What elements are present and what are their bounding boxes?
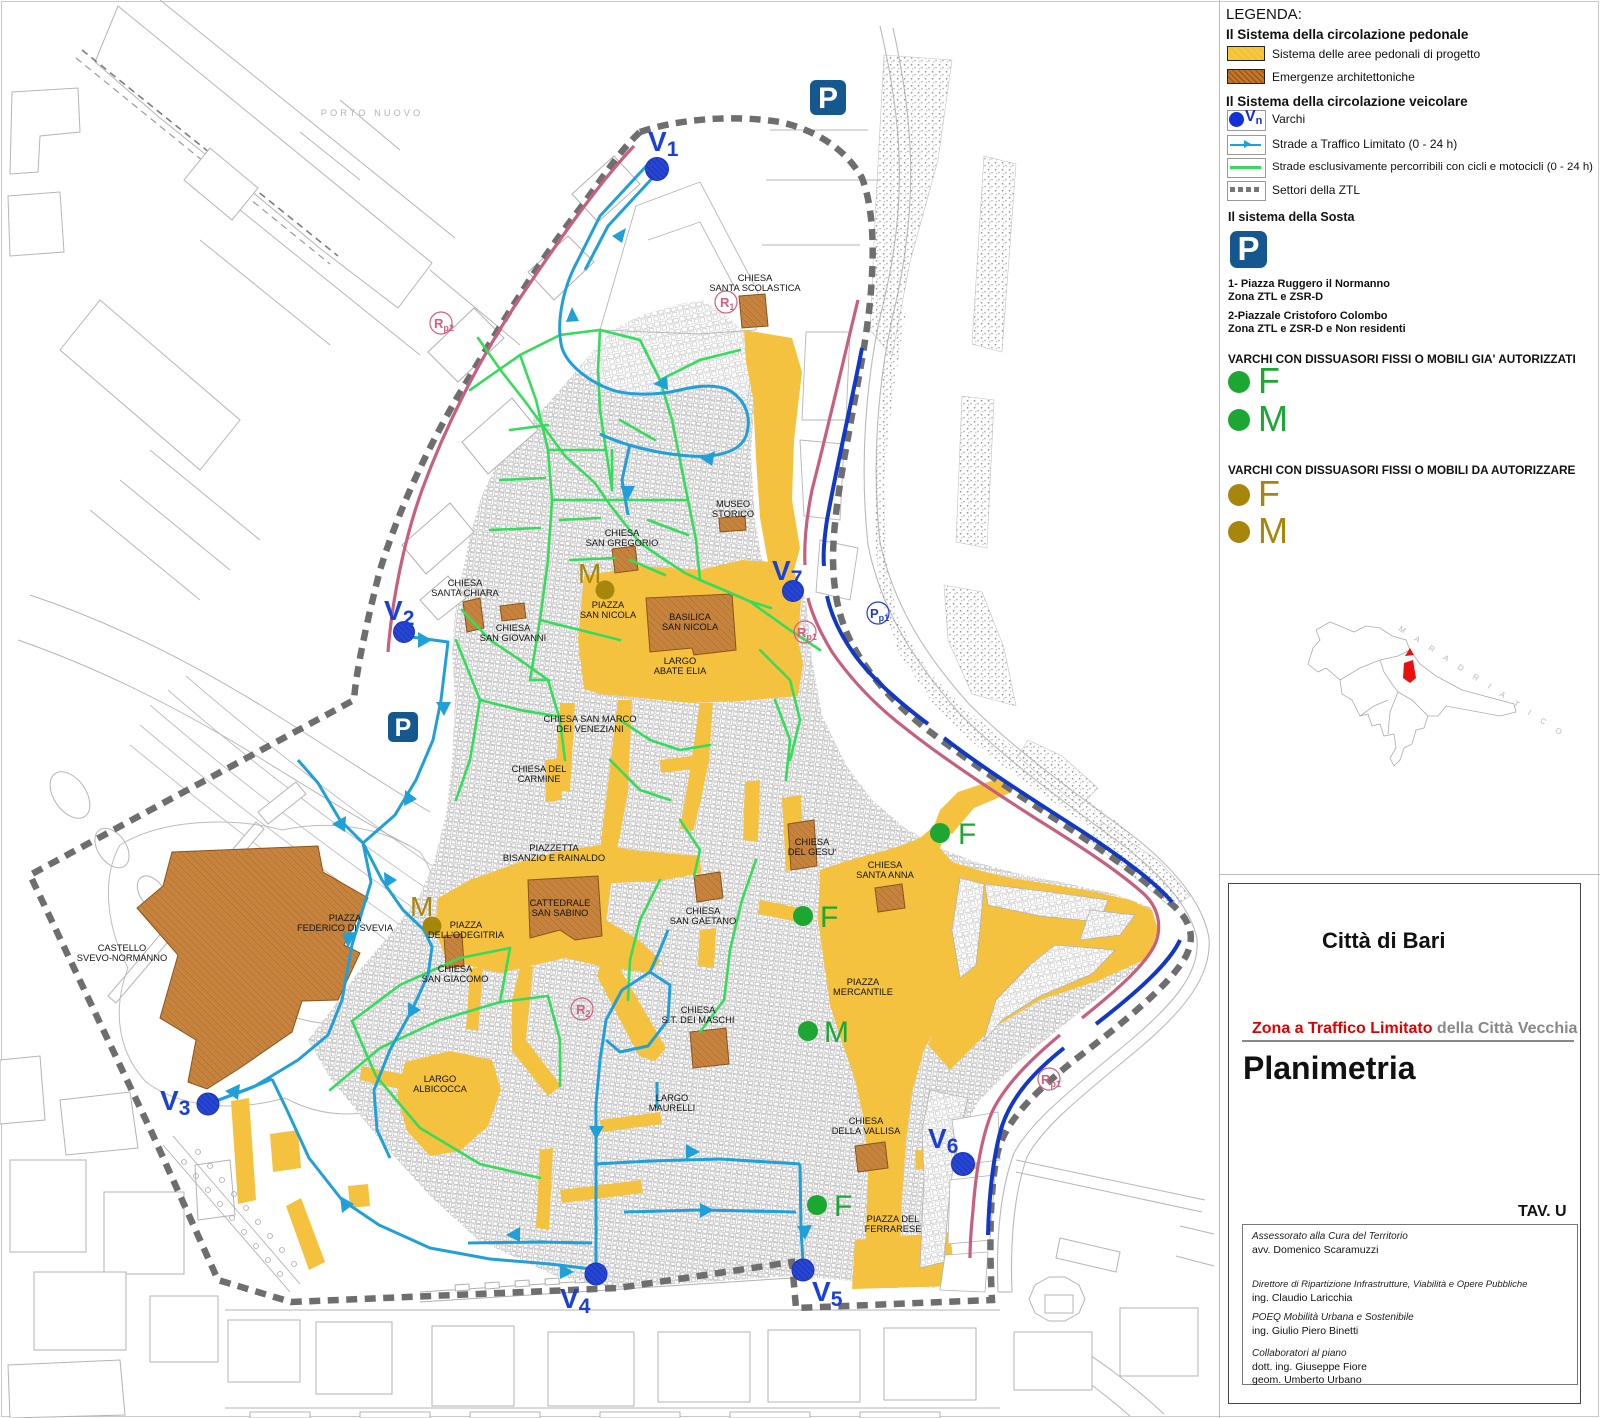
svg-text:STORICO: STORICO [712,509,754,519]
svg-text:PIAZZA: PIAZZA [329,913,362,923]
svg-text:SAN NICOLA: SAN NICOLA [662,622,719,632]
svg-text:CASTELLO: CASTELLO [98,943,147,953]
svg-text:CARMINE: CARMINE [518,774,561,784]
svg-text:S.T. DEI MASCHI: S.T. DEI MASCHI [662,1015,735,1025]
svg-text:MERCANTILE: MERCANTILE [833,987,893,997]
svg-text:CHIESA DEL: CHIESA DEL [512,764,567,774]
svg-text:FERRARESE: FERRARESE [865,1224,922,1234]
svg-text:F: F [958,818,976,851]
svg-text:SAN GREGORIO: SAN GREGORIO [586,538,659,548]
svg-text:SANTA ANNA: SANTA ANNA [856,870,914,880]
svg-text:CHIESA: CHIESA [605,528,640,538]
svg-text:CHIESA: CHIESA [795,837,830,847]
svg-text:SANTA SCOLASTICA: SANTA SCOLASTICA [709,283,801,293]
svg-text:PIAZZETTA: PIAZZETTA [529,843,579,853]
svg-text:M: M [578,558,601,589]
svg-text:M: M [410,891,433,922]
svg-text:M A R A D R I A T I C O: M A R A D R I A T I C O [1397,624,1568,739]
svg-text:V4: V4 [560,1283,591,1318]
svg-text:SVEVO-NORMANNO: SVEVO-NORMANNO [77,953,167,963]
svg-text:PIAZZA DEL: PIAZZA DEL [867,1214,920,1224]
svg-text:CHIESA: CHIESA [738,273,773,283]
svg-text:CHIESA: CHIESA [496,623,531,633]
svg-text:SAN GIACOMO: SAN GIACOMO [422,974,489,984]
svg-text:F: F [820,901,838,934]
svg-text:V1: V1 [648,126,679,161]
svg-text:PIAZZA: PIAZZA [592,600,625,610]
svg-text:LARGO: LARGO [664,656,697,666]
svg-text:V3: V3 [160,1085,190,1120]
svg-text:LARGO: LARGO [656,1093,689,1103]
svg-text:V7: V7 [772,555,802,590]
svg-text:DELL'ODEGITRIA: DELL'ODEGITRIA [428,930,505,940]
svg-text:Rp1: Rp1 [1041,1072,1061,1089]
svg-text:SAN NICOLA: SAN NICOLA [580,610,637,620]
svg-text:V2: V2 [384,595,414,630]
svg-text:BASILICA: BASILICA [669,612,712,622]
svg-text:CHIESA: CHIESA [868,860,903,870]
svg-text:FEDERICO DI SVEVIA: FEDERICO DI SVEVIA [297,923,394,933]
svg-text:M: M [824,1016,849,1049]
svg-text:F: F [834,1190,852,1223]
svg-text:ALBICOCCA: ALBICOCCA [413,1084,468,1094]
svg-text:SANTA CHIARA: SANTA CHIARA [431,588,499,598]
svg-text:PIAZZA: PIAZZA [847,977,880,987]
svg-text:SAN SABINO: SAN SABINO [532,908,589,918]
svg-text:SAN GIOVANNI: SAN GIOVANNI [480,633,546,643]
svg-text:CHIESA: CHIESA [438,964,473,974]
svg-text:R1: R1 [720,295,734,312]
svg-text:ABATE ELIA: ABATE ELIA [654,666,707,676]
svg-text:MAURELLI: MAURELLI [649,1103,696,1113]
svg-text:P: P [818,82,838,115]
svg-text:CHIESA: CHIESA [448,578,483,588]
svg-text:CHIESA SAN MARCO: CHIESA SAN MARCO [544,714,637,724]
svg-text:DEI VENEZIANI: DEI VENEZIANI [556,724,623,734]
svg-text:CHIESA: CHIESA [681,1005,716,1015]
svg-text:DEL GESU': DEL GESU' [788,847,837,857]
svg-text:SAN GAETANO: SAN GAETANO [670,916,736,926]
svg-text:DELLA VALLISA: DELLA VALLISA [832,1126,901,1136]
svg-text:LARGO: LARGO [424,1074,457,1084]
svg-text:CHIESA: CHIESA [686,906,721,916]
svg-text:CATTEDRALE: CATTEDRALE [530,898,591,908]
svg-text:PIAZZA: PIAZZA [450,920,483,930]
svg-text:CHIESA: CHIESA [849,1116,884,1126]
svg-text:V5: V5 [812,1276,843,1311]
svg-text:MUSEO: MUSEO [716,499,750,509]
svg-text:BISANZIO E RAINALDO: BISANZIO E RAINALDO [503,853,605,863]
svg-text:P: P [395,714,412,742]
svg-text:PORTO NUOVO: PORTO NUOVO [321,108,423,118]
